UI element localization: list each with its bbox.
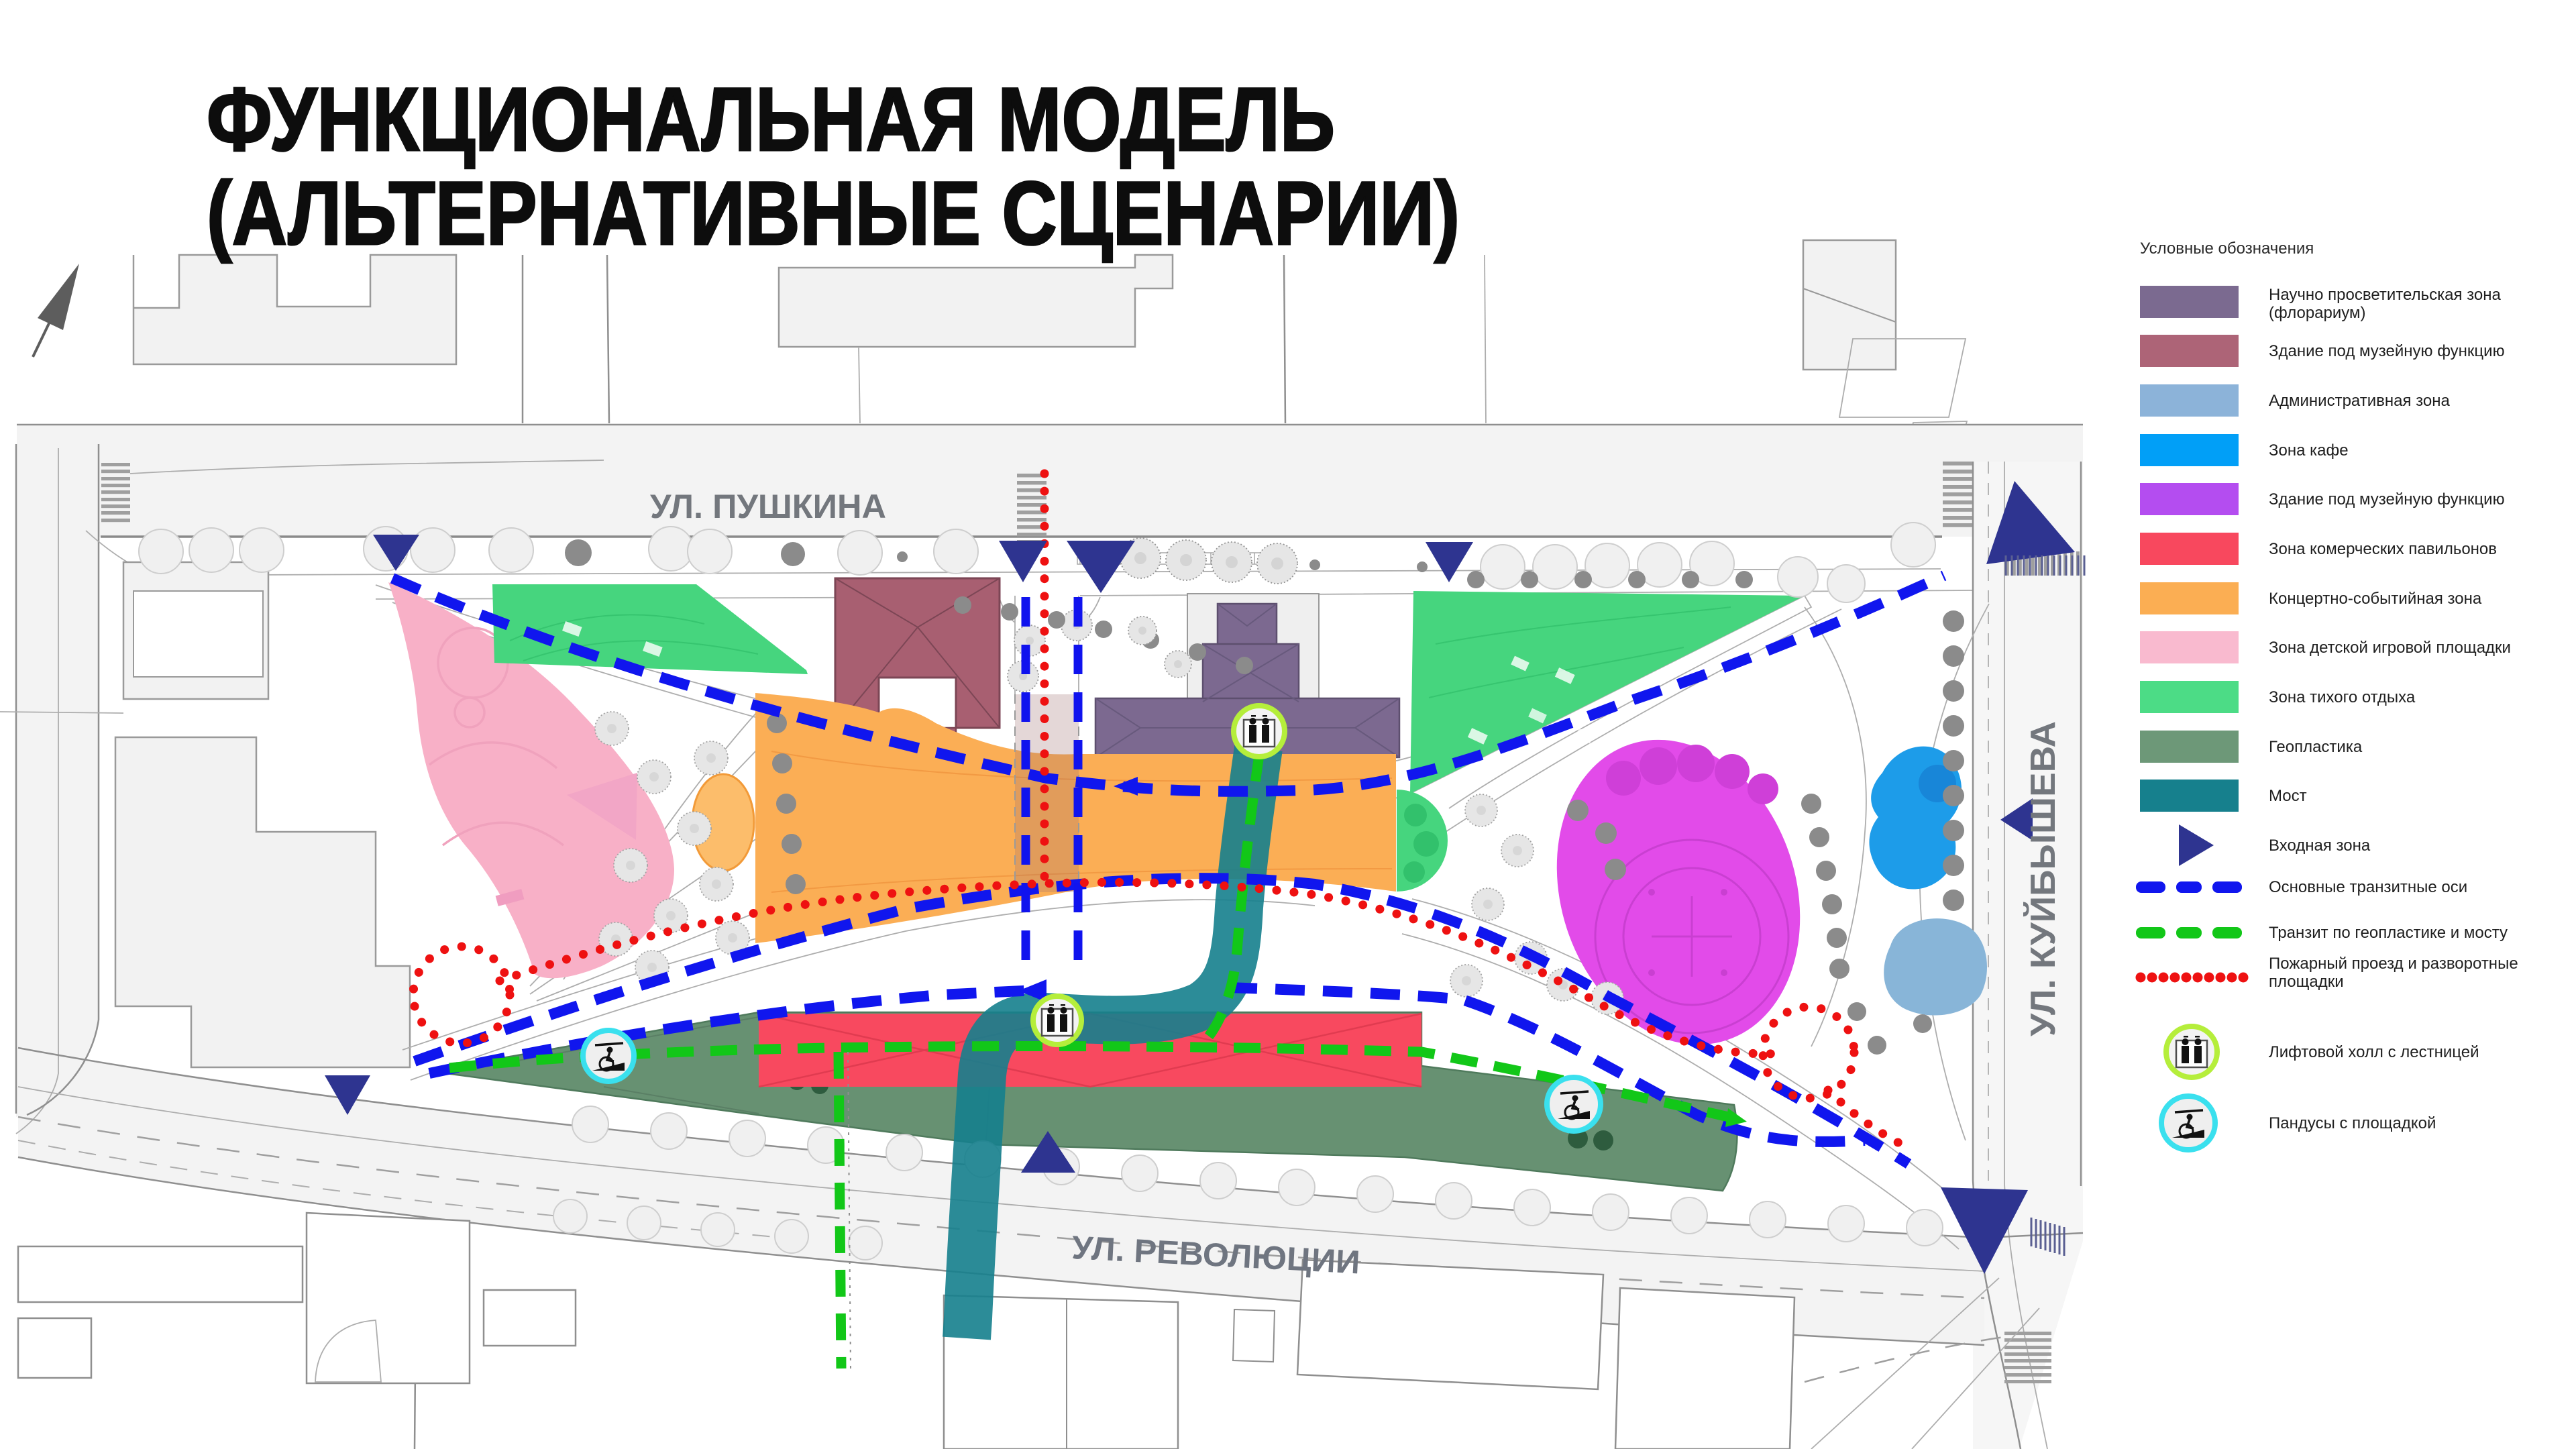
svg-text:Научно просветительская зона: Научно просветительская зона: [2269, 286, 2501, 304]
svg-text:УЛ. КУЙБЫШЕВА: УЛ. КУЙБЫШЕВА: [2023, 721, 2063, 1036]
svg-text:Зона тихого отдыха: Зона тихого отдыха: [2269, 688, 2416, 706]
svg-text:(АЛЬТЕРНАТИВНЫЕ СЦЕНАРИИ): (АЛЬТЕРНАТИВНЫЕ СЦЕНАРИИ): [207, 164, 1460, 264]
svg-text:Основные транзитные оси: Основные транзитные оси: [2269, 878, 2467, 896]
svg-text:Лифтовой холл с лестницей: Лифтовой холл с лестницей: [2269, 1043, 2479, 1061]
svg-text:Зона кафе: Зона кафе: [2269, 441, 2349, 460]
svg-text:(флорариум): (флорариум): [2269, 304, 2366, 322]
svg-text:Транзит по геопластике и мосту: Транзит по геопластике и мосту: [2269, 924, 2508, 942]
svg-text:Пандусы с площадкой: Пандусы с площадкой: [2269, 1114, 2436, 1132]
svg-text:Пожарный проезд и разворотные: Пожарный проезд и разворотные: [2269, 955, 2518, 973]
svg-text:Здание под музейную функцию: Здание под музейную функцию: [2269, 342, 2505, 360]
svg-text:площадки: площадки: [2269, 973, 2344, 991]
svg-text:Входная зона: Входная зона: [2269, 837, 2371, 855]
svg-text:Концертно-событийная зона: Концертно-событийная зона: [2269, 590, 2482, 608]
svg-text:Мост: Мост: [2269, 787, 2307, 805]
svg-text:Зона комерческих павильонов: Зона комерческих павильонов: [2269, 540, 2497, 558]
svg-text:Здание под музейную функцию: Здание под музейную функцию: [2269, 490, 2505, 508]
svg-text:ФУНКЦИОНАЛЬНАЯ МОДЕЛЬ: ФУНКЦИОНАЛЬНАЯ МОДЕЛЬ: [207, 70, 1335, 170]
svg-text:Зона детской игровой площадки: Зона детской игровой площадки: [2269, 639, 2511, 657]
svg-text:Геопластика: Геопластика: [2269, 738, 2363, 756]
svg-text:Условные обозначения: Условные обозначения: [2140, 239, 2314, 258]
svg-text:УЛ. ПУШКИНА: УЛ. ПУШКИНА: [650, 488, 886, 525]
svg-text:Административная зона: Административная зона: [2269, 392, 2450, 410]
